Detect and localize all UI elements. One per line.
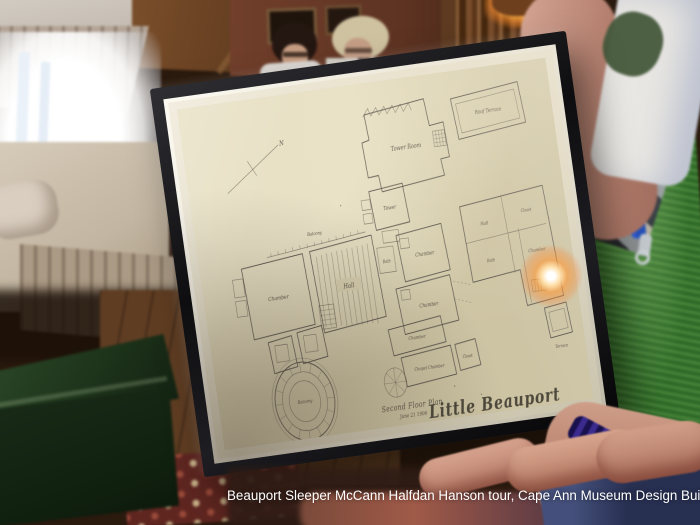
room-label: Chamber [415, 249, 435, 258]
photo-caption: Beauport Sleeper McCann Halfdan Hanson t… [227, 487, 697, 504]
room-label: Tower Room [390, 142, 421, 153]
paper-specks [340, 189, 482, 411]
room-label: Closet [463, 353, 474, 359]
room-label: Balcony [306, 231, 323, 239]
room-label: Tower [383, 204, 397, 213]
room-label: Bath [486, 257, 496, 264]
north-arrow: N [221, 139, 290, 193]
room-label: Terrace [555, 342, 569, 349]
round-tower: Balcony [262, 325, 343, 449]
room-label: Chapel Chamber [414, 362, 446, 372]
north-label: N [278, 139, 285, 148]
room-label: Chamber [408, 334, 427, 342]
bottom-center-rooms: Chamber Chapel Chamber Closet [376, 311, 484, 399]
room-label: Roof Terrace [474, 106, 502, 117]
visitor-two-glasses [345, 48, 372, 53]
visitor-one-glasses [283, 52, 308, 57]
room-label: Bath [382, 258, 392, 265]
lens-flare [520, 245, 582, 307]
photo-stage: N Tower Room Roof Terrace [0, 0, 700, 525]
green-chest-front [0, 388, 179, 525]
plan-date: June 21 1906 [399, 410, 428, 421]
room-label: Hall [479, 221, 489, 228]
left-wing: Balcony Chamber Hall Bath [227, 221, 403, 344]
room-label: Chamber [419, 300, 439, 309]
room-label: Closet [520, 206, 532, 213]
top-wing: Tower Room Roof Terrace [356, 81, 532, 194]
room-label: Balcony [297, 399, 314, 407]
lanyard-metal-ring [635, 250, 650, 265]
room-label: Hall [342, 281, 355, 290]
room-label: Chamber [268, 294, 290, 304]
